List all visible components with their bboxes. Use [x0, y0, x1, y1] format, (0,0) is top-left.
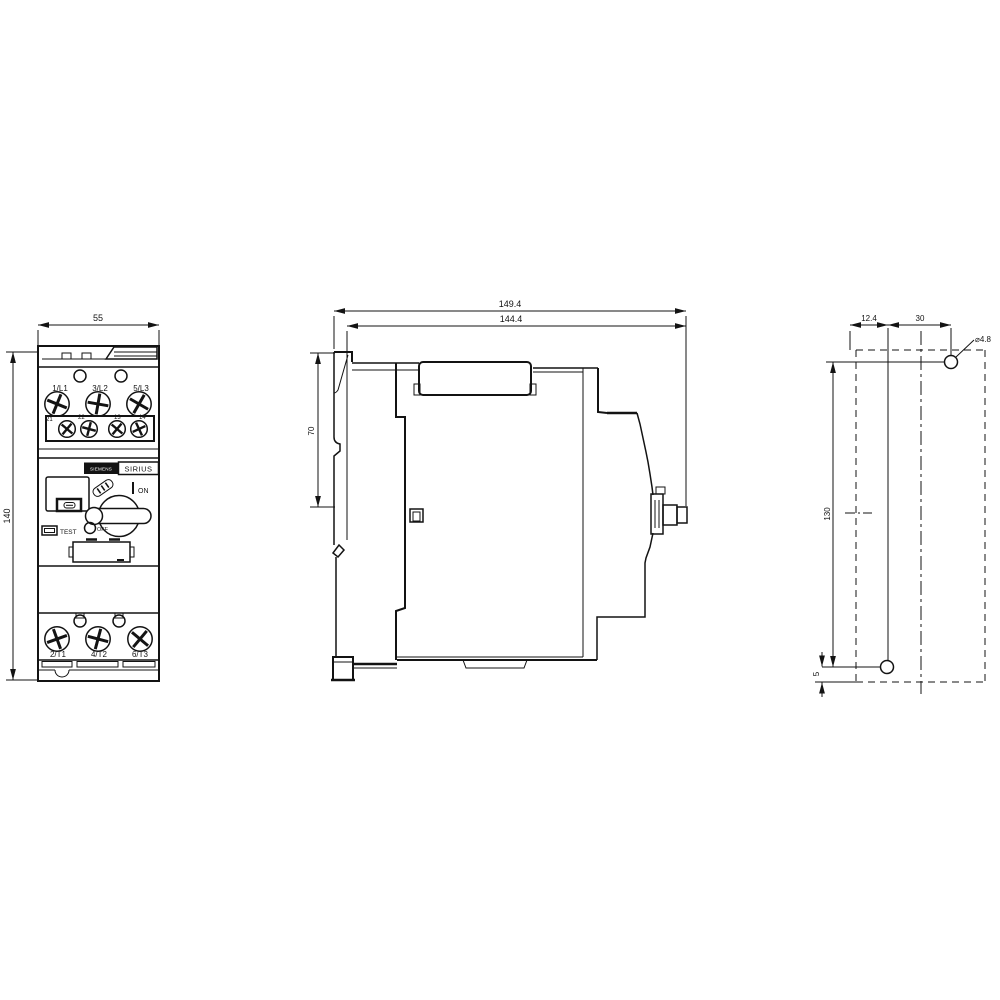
side-view: 149.4 144.4 70 [307, 299, 687, 680]
terminal-label-6T3: 6/T3 [132, 650, 149, 659]
side-body-outline [396, 363, 653, 668]
front-hole-top-2 [115, 370, 127, 382]
screw-terminal-4T2 [85, 626, 111, 652]
front-top-cap [38, 347, 159, 367]
front-height-value: 140 [2, 508, 12, 523]
off-label: OFF [97, 527, 109, 533]
din-rail-clip [331, 352, 397, 680]
drill-hole-top [945, 356, 958, 369]
drill-spacing-x-value: 30 [916, 314, 925, 323]
test-label: TEST [60, 529, 77, 536]
side-clip-value: 70 [307, 426, 316, 435]
front-hole-top-1 [74, 370, 86, 382]
nameplate-window [69, 540, 134, 563]
brand-label: SIEMENS [90, 467, 112, 472]
drill-spacing-y-value: 130 [823, 507, 832, 521]
front-width-dimension: 55 [38, 313, 159, 345]
drill-offset-dimension: 12.4 [850, 314, 888, 325]
drill-diameter-value: ⌀4.8 [975, 335, 991, 344]
dimensional-drawing-page: 55 140 1/L1 3/L2 5/L3 [0, 0, 1000, 1000]
front-width-value: 55 [93, 313, 103, 323]
aux-screw-13 [107, 419, 127, 439]
front-height-dimension: 140 [2, 352, 38, 680]
side-knob-shaft [651, 487, 687, 534]
side-mount-slot [410, 509, 423, 522]
aux-label-22: 22 [78, 415, 85, 421]
front-hole-bottom-2 [113, 615, 125, 627]
aux-screw-22 [80, 420, 97, 437]
front-hole-bottom-1 [74, 615, 86, 627]
aux-terminal-block: 21 22 13 14 [46, 415, 154, 441]
side-overall-value: 149.4 [499, 299, 522, 309]
drill-offset-value: 12.4 [861, 314, 877, 323]
screw-terminal-3L2 [86, 392, 110, 416]
side-top-profile [352, 362, 598, 395]
side-body-dimension: 144.4 [347, 314, 686, 358]
terminal-label-4T2: 4/T2 [91, 650, 108, 659]
drill-spacing-y-dimension: 130 [823, 362, 833, 667]
family-label: SIRIUS [124, 465, 152, 474]
aux-screw-14 [130, 420, 149, 439]
aux-screw-21 [57, 419, 77, 439]
front-bottom-strip [38, 660, 159, 677]
drilling-plan: 12.4 30 130 5 ⌀4.8 [812, 314, 991, 697]
dimensional-drawing: 55 140 1/L1 3/L2 5/L3 [0, 0, 1000, 1000]
drill-spacing-x-dimension: 30 [888, 314, 951, 325]
diagonal-marking [91, 478, 114, 498]
drill-bottom-offset-value: 5 [812, 671, 821, 676]
adjustment-housing [46, 477, 89, 511]
aux-label-21: 21 [46, 417, 53, 423]
drill-hole-bottom [881, 661, 894, 674]
on-label: ON [138, 488, 149, 495]
side-body-value: 144.4 [500, 314, 523, 324]
side-top-hump [419, 362, 531, 395]
drill-diameter-callout: ⌀4.8 [956, 335, 991, 357]
side-clip-dimension: 70 [307, 353, 335, 507]
screw-terminal-1L1 [43, 390, 70, 417]
screw-terminal-2T1 [44, 626, 71, 653]
terminal-label-2T1: 2/T1 [50, 650, 67, 659]
on-marker: ON [133, 482, 149, 495]
drill-bottom-offset-dimension: 5 [812, 652, 857, 697]
side-overall-dimension: 149.4 [334, 299, 686, 506]
test-button[interactable]: TEST [42, 526, 77, 536]
front-view: 55 140 1/L1 3/L2 5/L3 [2, 313, 159, 681]
side-bottom-tab [463, 660, 527, 668]
